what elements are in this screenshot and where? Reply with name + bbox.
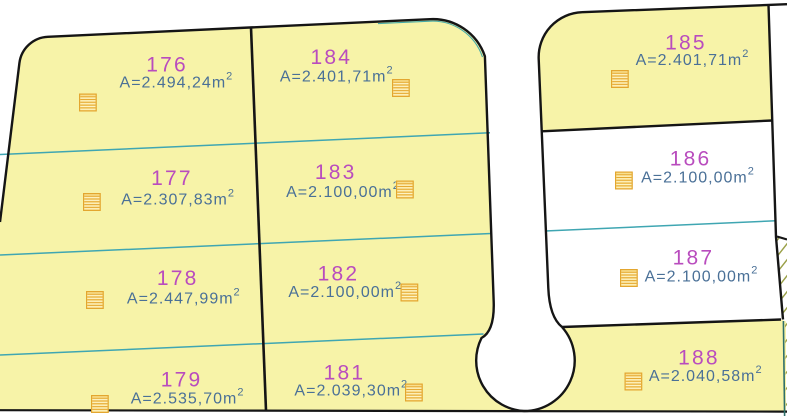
- svg-text:186: 186: [670, 148, 712, 171]
- svg-text:181: 181: [324, 361, 366, 384]
- svg-text:182: 182: [318, 263, 360, 286]
- svg-text:184: 184: [310, 46, 352, 69]
- svg-text:188: 188: [678, 346, 720, 369]
- svg-text:A=2.535,70m2: A=2.535,70m2: [131, 386, 245, 407]
- svg-text:A=2.100,00m2: A=2.100,00m2: [286, 180, 400, 201]
- svg-text:A=2.100,00m2: A=2.100,00m2: [645, 264, 759, 285]
- svg-text:183: 183: [315, 161, 357, 184]
- svg-text:A=2.100,00m2: A=2.100,00m2: [288, 280, 402, 301]
- svg-text:A=2.447,99m2: A=2.447,99m2: [127, 286, 241, 307]
- svg-text:179: 179: [161, 368, 203, 391]
- svg-text:A=2.100,00m2: A=2.100,00m2: [641, 166, 755, 187]
- svg-text:178: 178: [157, 267, 199, 290]
- svg-text:A=2.401,71m2: A=2.401,71m2: [280, 64, 394, 85]
- svg-text:187: 187: [673, 247, 715, 270]
- svg-text:A=2.307,83m2: A=2.307,83m2: [121, 187, 235, 208]
- svg-text:A=2.040,58m2: A=2.040,58m2: [649, 364, 763, 385]
- svg-text:176: 176: [146, 53, 188, 76]
- svg-text:A=2.494,24m2: A=2.494,24m2: [120, 71, 234, 92]
- svg-text:A=2.039,30m2: A=2.039,30m2: [294, 378, 408, 399]
- svg-text:A=2.401,71m2: A=2.401,71m2: [636, 48, 750, 69]
- svg-text:177: 177: [151, 167, 193, 190]
